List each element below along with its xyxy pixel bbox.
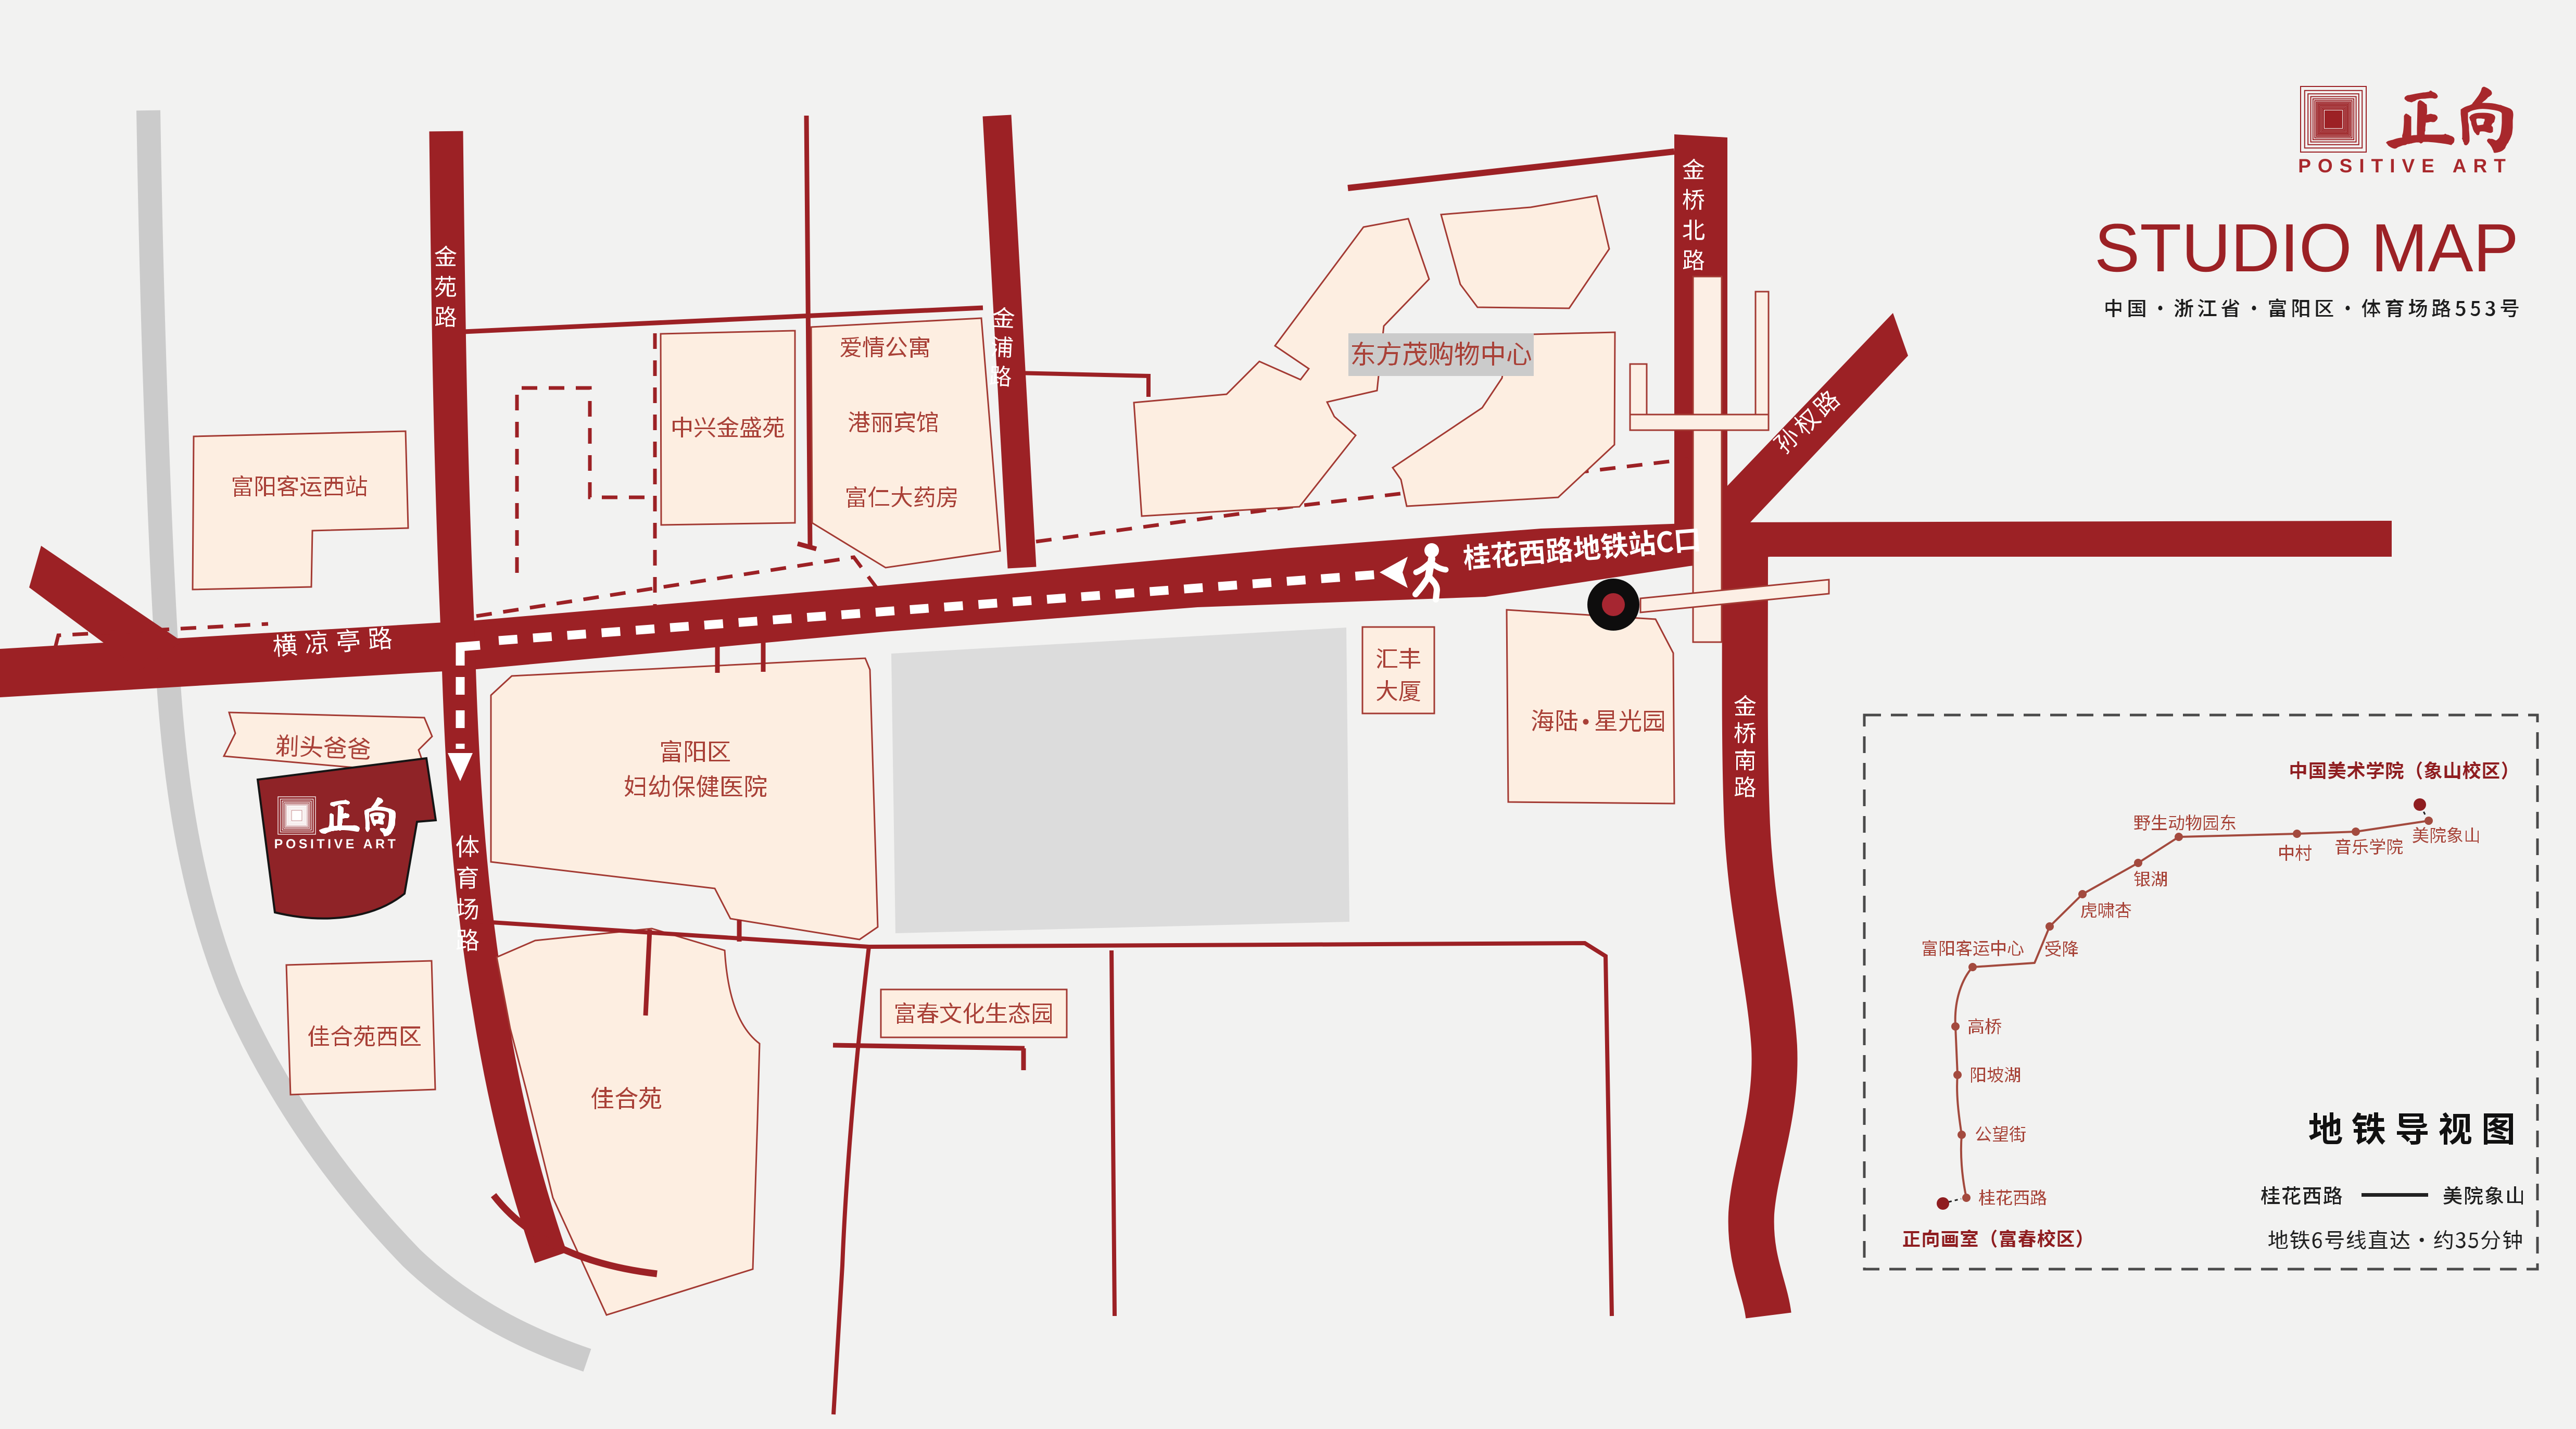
svg-text:POSITIVE ART: POSITIVE ART <box>2298 155 2512 177</box>
svg-text:POSITIVE ART: POSITIVE ART <box>274 837 399 851</box>
svg-text:STUDIO MAP: STUDIO MAP <box>2094 209 2519 286</box>
